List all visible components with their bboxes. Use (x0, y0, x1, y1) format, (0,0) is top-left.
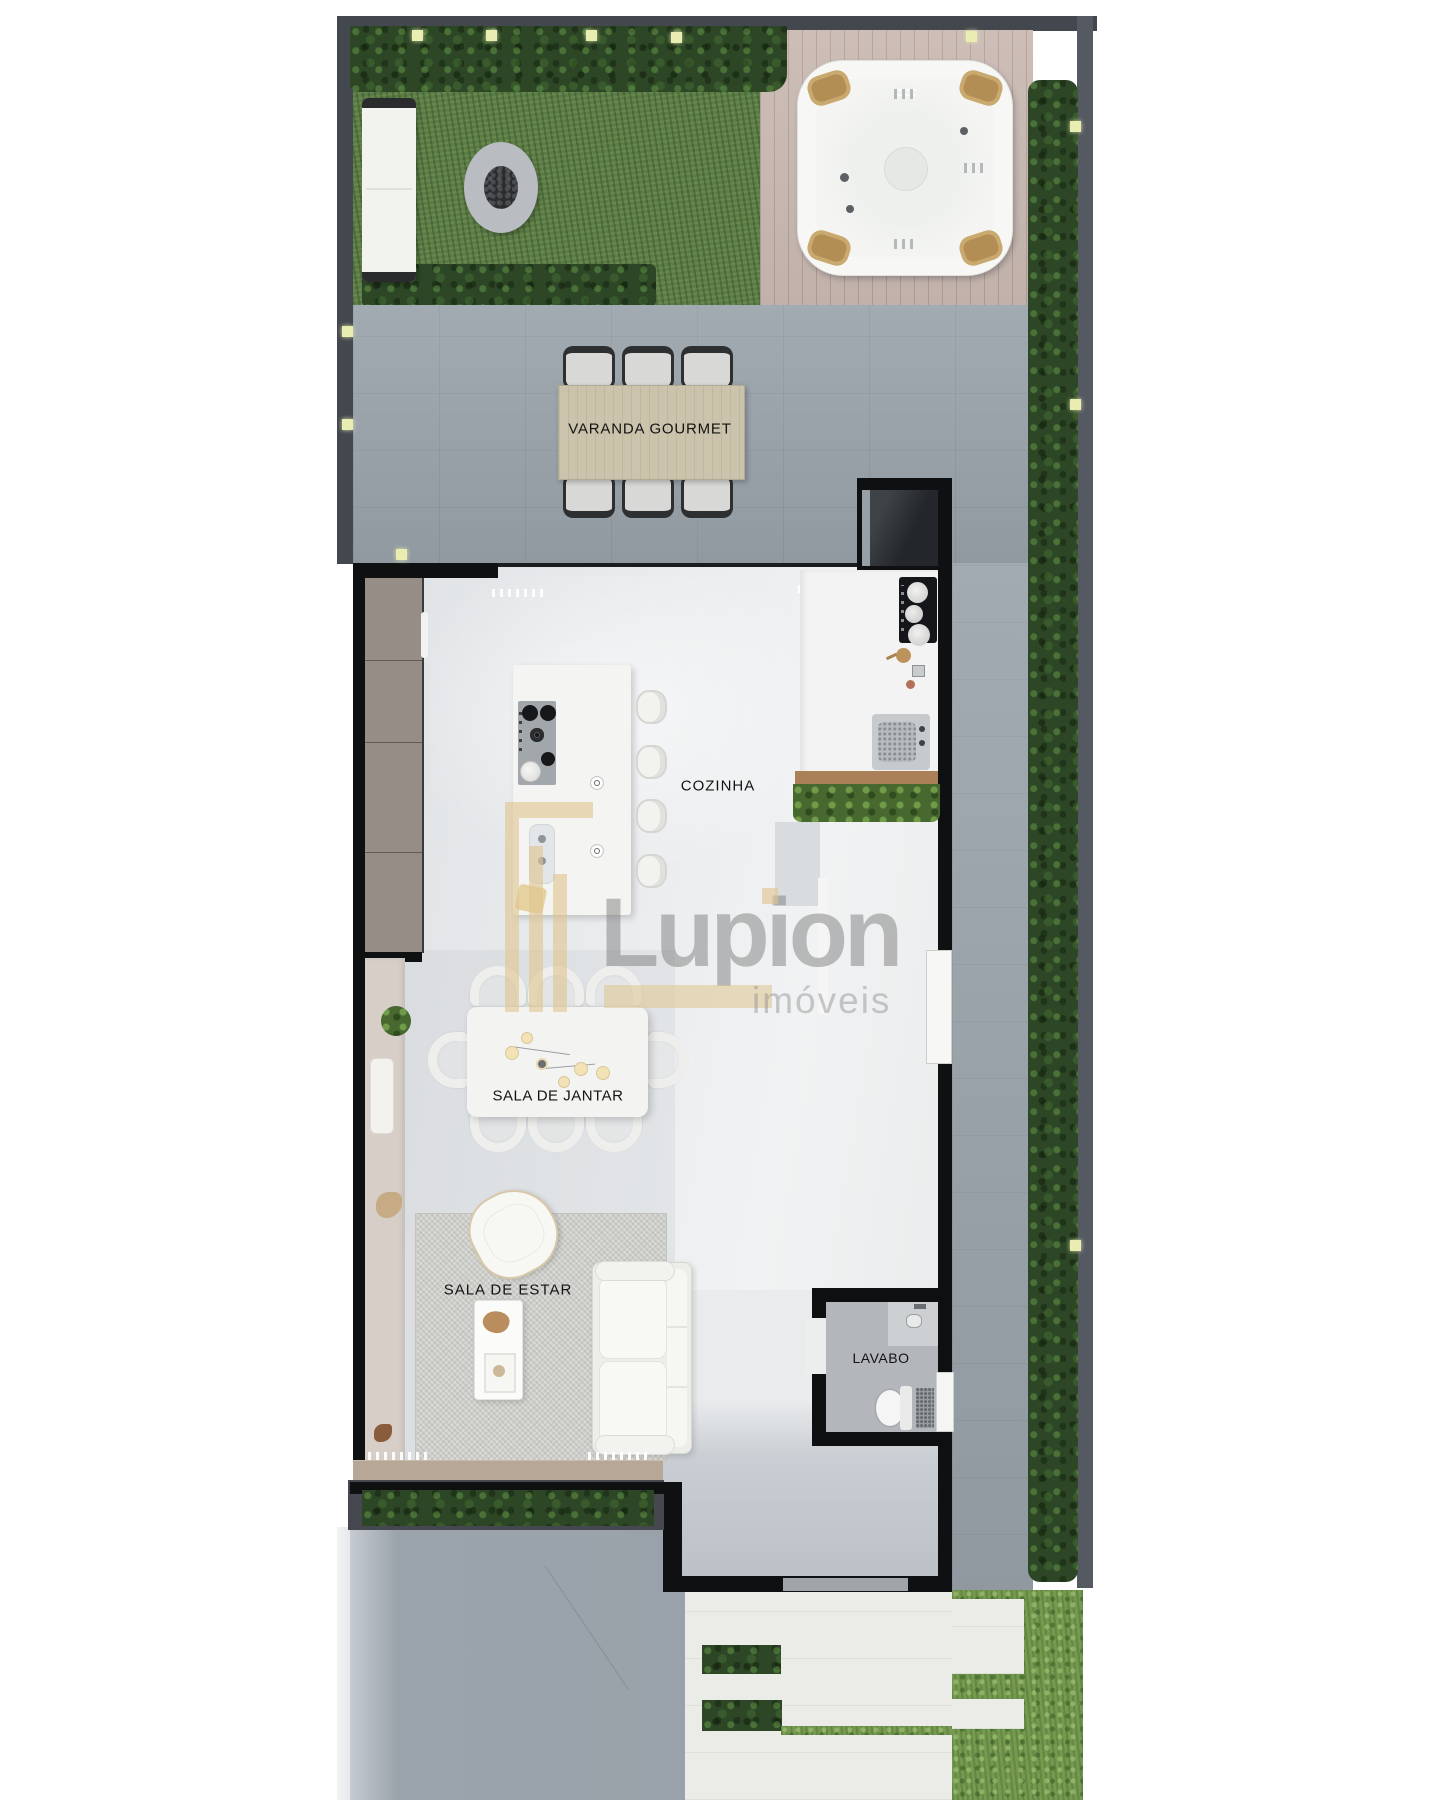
walkway-hedge-box-2 (702, 1700, 782, 1731)
kitchen-faucet-1 (919, 726, 925, 732)
sofa-cushion-1 (599, 1277, 667, 1359)
sideboard-plant (381, 1006, 411, 1036)
garden-sofa-arm-bottom (362, 272, 416, 282)
front-hedge (362, 1490, 654, 1526)
counter-item-copper (906, 680, 915, 689)
hedge-right-column (1028, 80, 1078, 1582)
sofa-cushion-2 (599, 1361, 667, 1443)
wall-light-top-1 (412, 30, 423, 41)
entry-niche-glass (869, 490, 940, 566)
half-wall-planter (793, 784, 940, 822)
hot-tub-center-jet (884, 147, 928, 191)
counter-item-box (912, 665, 925, 677)
sofa (592, 1262, 692, 1454)
wall-light-top-5 (966, 31, 977, 42)
wall-light-left-1 (342, 326, 353, 337)
entry-niche-sill (862, 490, 870, 566)
pot-3 (908, 624, 930, 646)
hot-tub-dot-2 (960, 127, 968, 135)
coffee-table-leaf (480, 1307, 512, 1337)
hot-tub-jets-bottom (894, 239, 916, 249)
counter-column (818, 878, 828, 1014)
burner-1 (522, 705, 538, 721)
house-wall-step (663, 1482, 682, 1592)
lavabo-mat (916, 1388, 934, 1428)
label-sala-de-jantar: SALA DE JANTAR (493, 1088, 624, 1105)
label-sala-de-estar: SALA DE ESTAR (444, 1282, 573, 1299)
wall-light-left-2 (342, 419, 353, 430)
cabinet-handle (421, 612, 428, 658)
hot-tub-dot-3 (846, 205, 854, 213)
label-cozinha: COZINHA (681, 778, 756, 795)
wall-light-top-3 (586, 30, 597, 41)
garden-sofa (362, 98, 416, 282)
chandelier-bulb-4 (596, 1066, 610, 1080)
burner-3 (530, 728, 544, 742)
wall-light-house (396, 549, 407, 560)
rear-sliding-door (783, 1578, 908, 1591)
side-corridor (952, 563, 1033, 1592)
chandelier-bulb-2 (521, 1032, 533, 1044)
house-wall-top-segment (353, 563, 498, 578)
cabinet-divider-3 (365, 852, 422, 853)
varanda-chair-1 (563, 346, 615, 390)
chandelier-bulb-1 (505, 1046, 519, 1060)
front-walkway (685, 1590, 952, 1800)
pot-1 (907, 582, 928, 603)
coffee-table (474, 1300, 523, 1400)
chandelier-bulb-3 (574, 1062, 588, 1076)
lavabo-door-leaf (936, 1372, 954, 1432)
cabinet-divider-2 (365, 742, 422, 743)
island-sink (529, 824, 555, 884)
garden-sofa-seam (366, 188, 412, 190)
burner-2 (540, 705, 556, 721)
lavabo-faucet (914, 1304, 926, 1309)
wall-light-top-4 (671, 32, 682, 43)
fire-pit-coals (484, 166, 518, 209)
lavabo-door-gap (806, 1318, 826, 1374)
hot-tub-jets-right (964, 163, 984, 173)
window-ticks-front-left (368, 1452, 432, 1460)
kitchen-faucet-2 (919, 740, 925, 746)
kitchen-sink-basin (878, 722, 916, 762)
walkway-paver-tab-2 (952, 1699, 1024, 1729)
pot-on-island (520, 761, 541, 782)
coffee-table-tray (484, 1353, 516, 1393)
side-door-leaf (926, 950, 952, 1064)
wall-cooktop-knobs (901, 585, 904, 631)
lower-counter-band (775, 822, 820, 906)
cooktop-knobs (519, 711, 522, 751)
house-wall-left (353, 563, 365, 1496)
chandelier-hub (536, 1058, 548, 1070)
cabinet-divider-1 (365, 660, 422, 661)
sofa-backrest (667, 1269, 687, 1447)
gold-pan (896, 648, 911, 663)
floor-spot-2 (590, 844, 604, 858)
driveway (350, 1527, 688, 1800)
sofa-back-seam-2 (667, 1386, 687, 1388)
wall-cooktop (899, 577, 937, 643)
wall-light-right-1 (1070, 121, 1081, 132)
kitchen-cabinet-run (365, 578, 424, 953)
sideboard-vase (370, 1058, 394, 1134)
wall-light-right-3 (1070, 1240, 1081, 1251)
island-sink-knob-1 (538, 835, 546, 843)
island-cooktop (518, 701, 556, 785)
window-ticks-kitchen-left (492, 589, 548, 597)
island-stool-3 (636, 799, 667, 833)
hot-tub-dot-1 (840, 173, 849, 182)
varanda-chair-2 (622, 346, 674, 390)
chandelier-bulb-5 (558, 1076, 570, 1088)
tray-item (493, 1365, 505, 1377)
floor-plan: VARANDA GOURMET (0, 0, 1440, 1800)
lavabo-vanity (888, 1302, 938, 1346)
floor-spot-1 (590, 776, 604, 790)
lavabo-room (812, 1288, 952, 1446)
walkway-paver-tab-1 (952, 1599, 1024, 1674)
island-stool-4 (636, 854, 667, 888)
house-wall-top-glassline (498, 563, 860, 567)
walkway-hedge-box-1 (702, 1645, 781, 1674)
armchair-seam (476, 1196, 553, 1271)
varanda-chair-6 (681, 474, 733, 518)
boundary-wall-left (337, 16, 353, 564)
pot-2 (905, 605, 923, 623)
sofa-back-seam-1 (667, 1326, 687, 1328)
island-stool-1 (636, 690, 667, 724)
garden-sofa-arm-top (362, 98, 416, 108)
grass-joint-strip (781, 1726, 952, 1735)
hot-tub (797, 60, 1013, 276)
varanda-chair-3 (681, 346, 733, 390)
lavabo-sink (906, 1314, 922, 1328)
island-stool-2 (636, 745, 667, 779)
varanda-chair-5 (622, 474, 674, 518)
label-lavabo: LAVABO (853, 1350, 910, 1366)
varanda-chair-4 (563, 474, 615, 518)
wall-light-right-2 (1070, 399, 1081, 410)
hot-tub-jets-top (894, 89, 916, 99)
cutting-board (515, 883, 548, 914)
boundary-wall-right (1077, 16, 1093, 1588)
sofa-armrest-top (595, 1261, 675, 1281)
wall-light-top-2 (486, 30, 497, 41)
kitchen-sink (872, 714, 930, 770)
burner-4 (541, 752, 555, 766)
toilet-tank (900, 1386, 912, 1430)
window-ticks-front-right (588, 1452, 650, 1460)
label-varanda-gourmet: VARANDA GOURMET (568, 421, 731, 438)
island-sink-knob-2 (538, 857, 546, 865)
